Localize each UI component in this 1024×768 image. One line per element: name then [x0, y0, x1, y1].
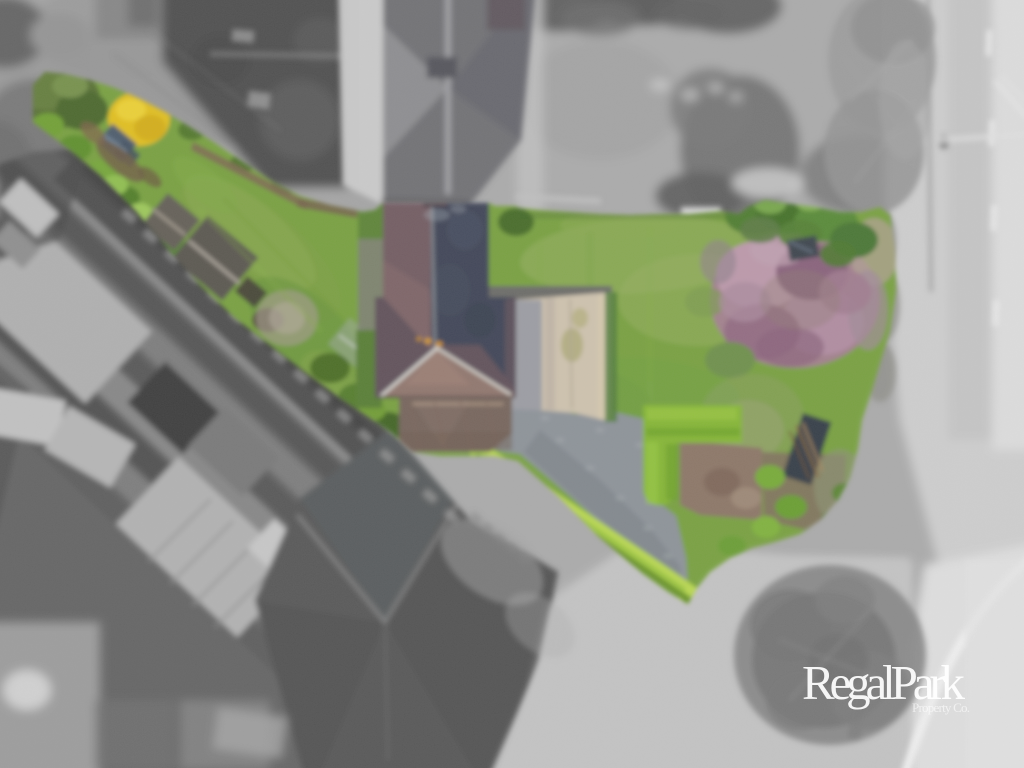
- svg-text:Property Co.: Property Co.: [912, 700, 970, 715]
